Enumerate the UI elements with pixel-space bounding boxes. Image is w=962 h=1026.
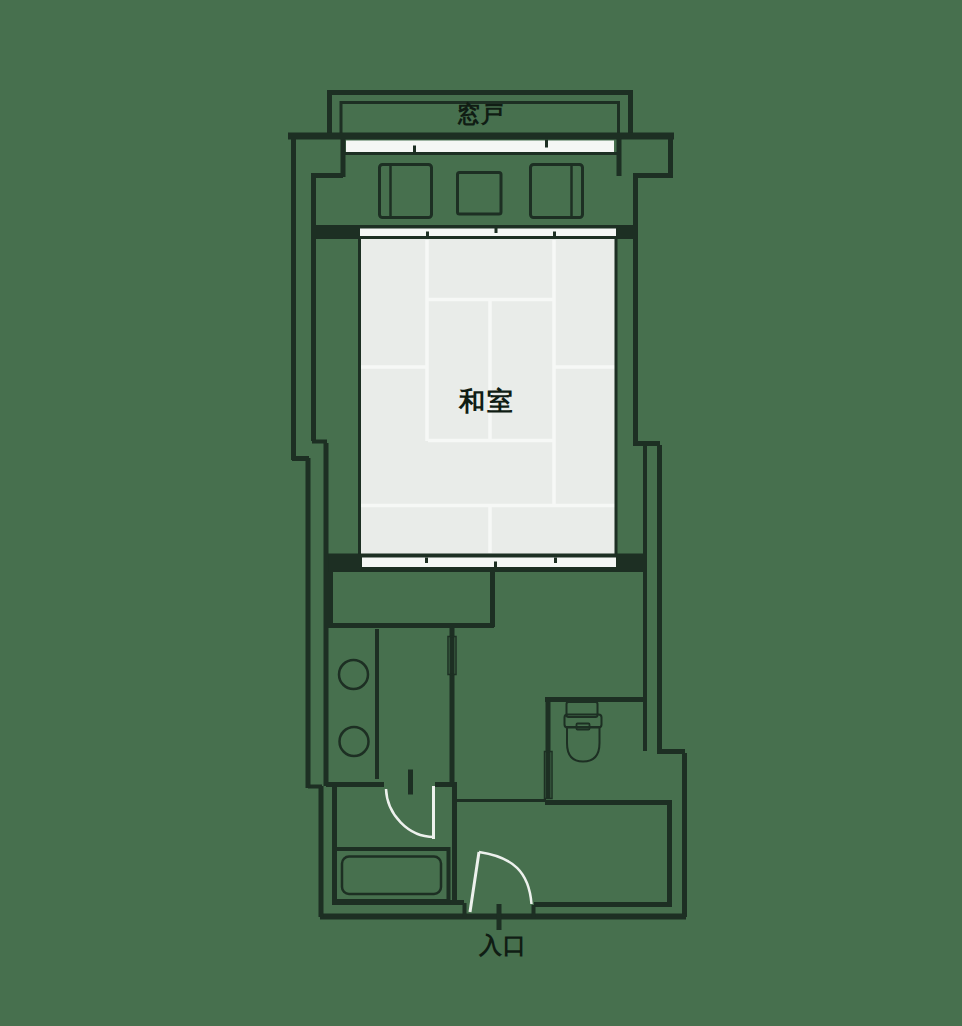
window-band [344,140,619,154]
panel-divider [553,232,556,237]
sliding-track-top [360,229,616,237]
panel-divider [425,558,428,564]
sliding-track-bottom [362,558,616,568]
window-door-label: 窓戸 [457,101,505,127]
panel-divider [494,562,497,568]
panel-divider [495,228,498,233]
floor-plan-canvas: 窓戸 和室 入口 [0,0,962,1026]
panel-divider [554,558,557,564]
panel-divider [426,232,429,237]
window-glass-band [346,141,614,153]
sliding-door-bottom [326,554,647,573]
sliding-door-top [313,225,637,239]
entrance-door-jamb [497,904,502,930]
window-panel-divider [413,146,416,154]
entrance-label: 入口 [478,932,527,958]
tatami-room-label: 和室 [458,386,515,416]
window-panel-divider [545,140,548,148]
floor-plan: 窓戸 和室 入口 [0,0,962,1026]
bathroom-door-jamb [408,770,413,795]
